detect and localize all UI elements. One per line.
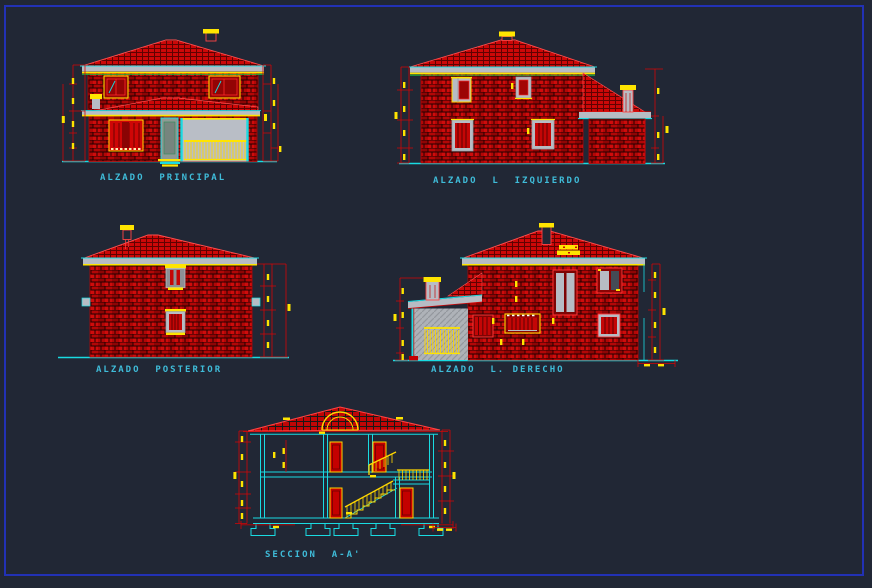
main-roof	[460, 231, 647, 265]
brick-wall	[421, 73, 583, 163]
dimensions-left	[395, 67, 414, 163]
upper-window	[165, 266, 186, 291]
lower-right-wall	[589, 119, 645, 164]
elevation-principal-svg	[58, 28, 290, 176]
chimney	[499, 32, 515, 41]
label-alzado-derecho: ALZADO L. DERECHO	[431, 365, 565, 375]
dimensions-right	[433, 430, 456, 532]
staircase	[345, 452, 429, 518]
upper-window-left	[104, 76, 128, 98]
dimensions-right	[257, 264, 291, 357]
lower-window-left	[451, 120, 474, 152]
base-lines	[241, 521, 453, 529]
lower-left-window	[473, 315, 493, 337]
elevation-right-side-svg	[392, 222, 684, 382]
lower-window	[165, 309, 186, 335]
porch	[180, 118, 248, 162]
main-roof	[409, 40, 597, 75]
porch	[409, 309, 468, 361]
chimney	[203, 29, 219, 41]
footings	[251, 524, 443, 536]
elevation-right-side	[392, 222, 684, 382]
section-aa-svg	[233, 396, 463, 554]
main-roof	[80, 40, 266, 74]
dimensions-right	[638, 264, 675, 367]
tall-window	[553, 270, 577, 315]
label-alzado-posterior: ALZADO POSTERIOR	[96, 365, 222, 375]
door-steps	[158, 159, 182, 167]
upper-right-window	[597, 268, 622, 293]
wall-bracket-right	[252, 298, 260, 306]
elevation-rear-svg	[56, 222, 296, 380]
section-aa	[233, 396, 463, 554]
elevation-rear	[56, 222, 296, 380]
entry-door	[161, 118, 178, 161]
dimensions-left	[62, 65, 85, 161]
lower-right-window	[598, 314, 620, 337]
lower-middle-window	[505, 314, 540, 333]
cad-sheet: ALZADO PRINCIPAL	[0, 0, 872, 588]
shuttered-window	[109, 120, 143, 151]
porch-chimney	[424, 277, 442, 300]
elevation-principal	[58, 28, 290, 176]
upper-window-left	[451, 78, 472, 103]
label-seccion-aa: SECCION A-A'	[265, 550, 361, 560]
upper-window-right	[209, 76, 240, 98]
porch-roof-right	[578, 73, 652, 119]
main-roof	[81, 235, 259, 265]
elevation-left-side	[393, 28, 673, 180]
dimensions-right	[263, 65, 281, 161]
elevation-left-side-svg	[393, 28, 673, 180]
wall-bracket-left	[82, 298, 90, 306]
label-alzado-principal: ALZADO PRINCIPAL	[100, 173, 226, 183]
label-alzado-izquierdo: ALZADO L IZQUIERDO	[433, 176, 581, 186]
